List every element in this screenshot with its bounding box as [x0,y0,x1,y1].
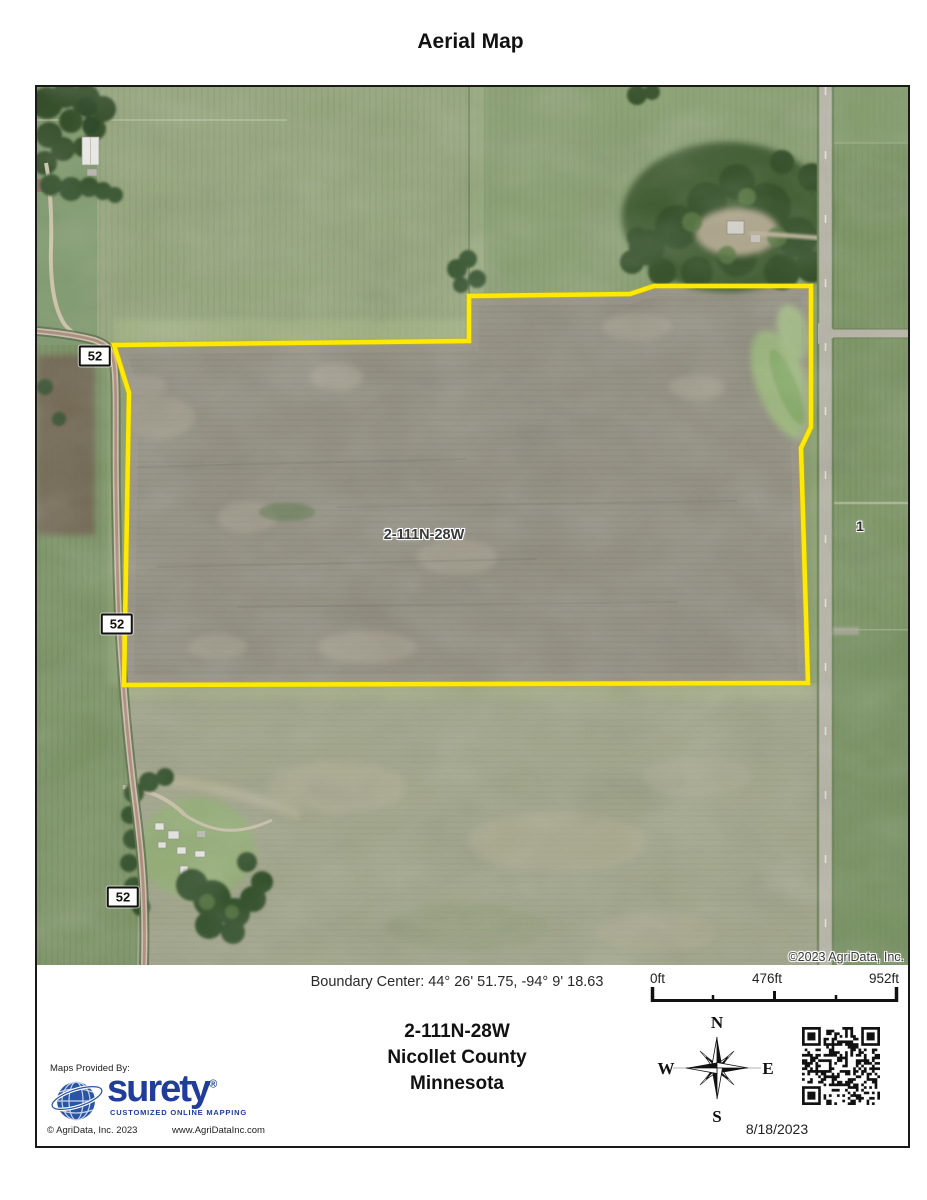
report-footer: Boundary Center: 44° 26' 51.75, -94° 9' … [35,965,910,1148]
road-sign-52-south: 52 [107,887,139,908]
brand-tagline: CUSTOMIZED ONLINE MAPPING [110,1108,247,1117]
report-date: 8/18/2023 [692,1121,862,1137]
compass-rose-icon: N S W E [657,1011,777,1125]
surety-logo: surety® CUSTOMIZED ONLINE MAPPING [47,1076,347,1122]
registered-mark: ® [209,1078,217,1090]
aerial-imagery [37,87,908,965]
parcel-label: 2-111N-28W [384,527,465,543]
section-number-label: 1 [856,518,864,534]
compass-west-label: W [658,1059,675,1078]
brand-name: surety® [107,1068,217,1111]
location-state: Minnesota [307,1071,607,1097]
scale-start-label: 0ft [650,971,665,986]
scale-mid-label: 476ft [752,971,782,986]
map-copyright: ©2023 AgriData, Inc. [788,950,904,964]
compass-east-label: E [762,1059,773,1078]
scale-end-label: 952ft [869,971,899,986]
compass-north-label: N [711,1013,724,1032]
location-county: Nicollet County [307,1045,607,1071]
location-block: 2-111N-28W Nicollet County Minnesota [307,1019,607,1097]
provider-copyright: © AgriData, Inc. 2023 [47,1125,137,1136]
provider-website: www.AgriDataInc.com [172,1125,265,1136]
road-sign-52-middle: 52 [101,614,133,635]
scale-bar [650,986,899,1003]
aerial-map: 52 52 52 2-111N-28W 1 ©2023 AgriData, In… [35,85,910,967]
provider-block: Maps Provided By: surety® CUSTOMIZED ONL… [47,1063,347,1136]
scale-bar-block: 0ft 476ft 952ft [650,971,899,1008]
location-trs: 2-111N-28W [307,1019,607,1045]
road-sign-52-north: 52 [79,346,111,367]
qr-code [802,1027,880,1105]
page-title: Aerial Map [35,30,906,54]
globe-icon [50,1078,106,1122]
